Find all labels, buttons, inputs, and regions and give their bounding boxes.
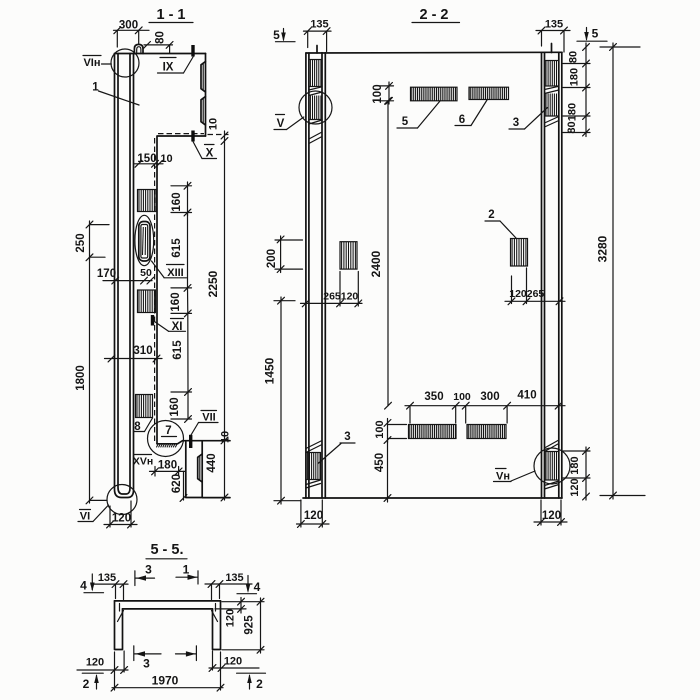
svg-text:135: 135 [225, 572, 243, 584]
svg-text:1450: 1450 [263, 357, 277, 384]
svg-text:180: 180 [569, 68, 581, 86]
svg-text:2: 2 [488, 209, 494, 221]
svg-text:120: 120 [112, 513, 131, 525]
svg-text:10: 10 [160, 153, 172, 165]
svg-text:615: 615 [171, 238, 183, 258]
svg-text:135: 135 [310, 19, 328, 31]
svg-text:10: 10 [208, 118, 220, 130]
svg-text:2400: 2400 [369, 250, 383, 277]
svg-text:1 - 1: 1 - 1 [156, 7, 185, 23]
svg-text:4: 4 [254, 580, 261, 594]
svg-text:V: V [277, 118, 285, 130]
svg-text:3280: 3280 [596, 235, 610, 262]
svg-text:80: 80 [566, 121, 578, 133]
svg-text:80: 80 [155, 31, 167, 44]
svg-text:135: 135 [98, 572, 116, 584]
svg-text:2: 2 [256, 677, 263, 691]
svg-text:450: 450 [374, 453, 386, 472]
svg-text:X: X [206, 148, 214, 160]
svg-text:3: 3 [145, 563, 152, 577]
svg-text:1: 1 [183, 563, 190, 577]
svg-text:120: 120 [224, 656, 242, 668]
svg-text:180: 180 [567, 103, 579, 121]
svg-text:VI: VI [80, 511, 90, 523]
svg-text:120: 120 [569, 478, 581, 496]
svg-text:180: 180 [158, 460, 177, 472]
svg-text:200: 200 [266, 249, 278, 268]
svg-text:5: 5 [592, 27, 599, 41]
svg-text:80: 80 [568, 51, 580, 63]
svg-text:620: 620 [171, 474, 183, 493]
svg-text:350: 350 [424, 391, 443, 403]
svg-text:310: 310 [133, 345, 152, 357]
svg-text:135: 135 [545, 19, 563, 31]
svg-text:120: 120 [542, 510, 561, 522]
svg-text:1: 1 [92, 82, 99, 94]
svg-text:2: 2 [83, 677, 90, 691]
svg-text:VII: VII [202, 412, 215, 424]
svg-text:615: 615 [172, 340, 184, 360]
svg-text:Vн: Vн [496, 471, 510, 483]
svg-text:6: 6 [459, 114, 465, 126]
svg-text:100: 100 [453, 391, 471, 403]
svg-text:120: 120 [304, 510, 323, 522]
svg-text:265: 265 [323, 291, 341, 303]
svg-text:IX: IX [163, 62, 174, 74]
svg-text:7: 7 [165, 425, 171, 437]
svg-text:2250: 2250 [206, 270, 220, 297]
svg-text:250: 250 [75, 233, 87, 252]
svg-text:120: 120 [225, 609, 237, 627]
svg-text:170: 170 [97, 268, 116, 280]
svg-text:1800: 1800 [75, 365, 87, 391]
svg-text:3: 3 [344, 431, 350, 443]
svg-text:2 - 2: 2 - 2 [419, 7, 448, 23]
svg-text:5: 5 [273, 28, 280, 42]
svg-text:50: 50 [140, 267, 152, 279]
svg-text:160: 160 [169, 397, 181, 416]
svg-text:3: 3 [513, 117, 519, 129]
svg-text:440: 440 [206, 453, 218, 472]
svg-text:925: 925 [244, 615, 256, 635]
svg-text:410: 410 [517, 390, 536, 402]
svg-text:300: 300 [480, 391, 499, 403]
svg-text:160: 160 [170, 292, 182, 311]
svg-text:4: 4 [80, 579, 87, 593]
svg-text:1970: 1970 [152, 674, 179, 688]
svg-text:XVн: XVн [133, 456, 153, 468]
svg-text:VIн: VIн [83, 57, 100, 69]
svg-text:180: 180 [569, 456, 581, 474]
svg-text:3: 3 [143, 657, 150, 671]
svg-text:100: 100 [374, 420, 386, 438]
svg-text:120: 120 [86, 657, 104, 669]
svg-text:5 - 5.: 5 - 5. [150, 542, 183, 558]
svg-text:10: 10 [220, 431, 232, 443]
svg-text:5: 5 [402, 116, 409, 128]
svg-text:160: 160 [171, 192, 183, 211]
